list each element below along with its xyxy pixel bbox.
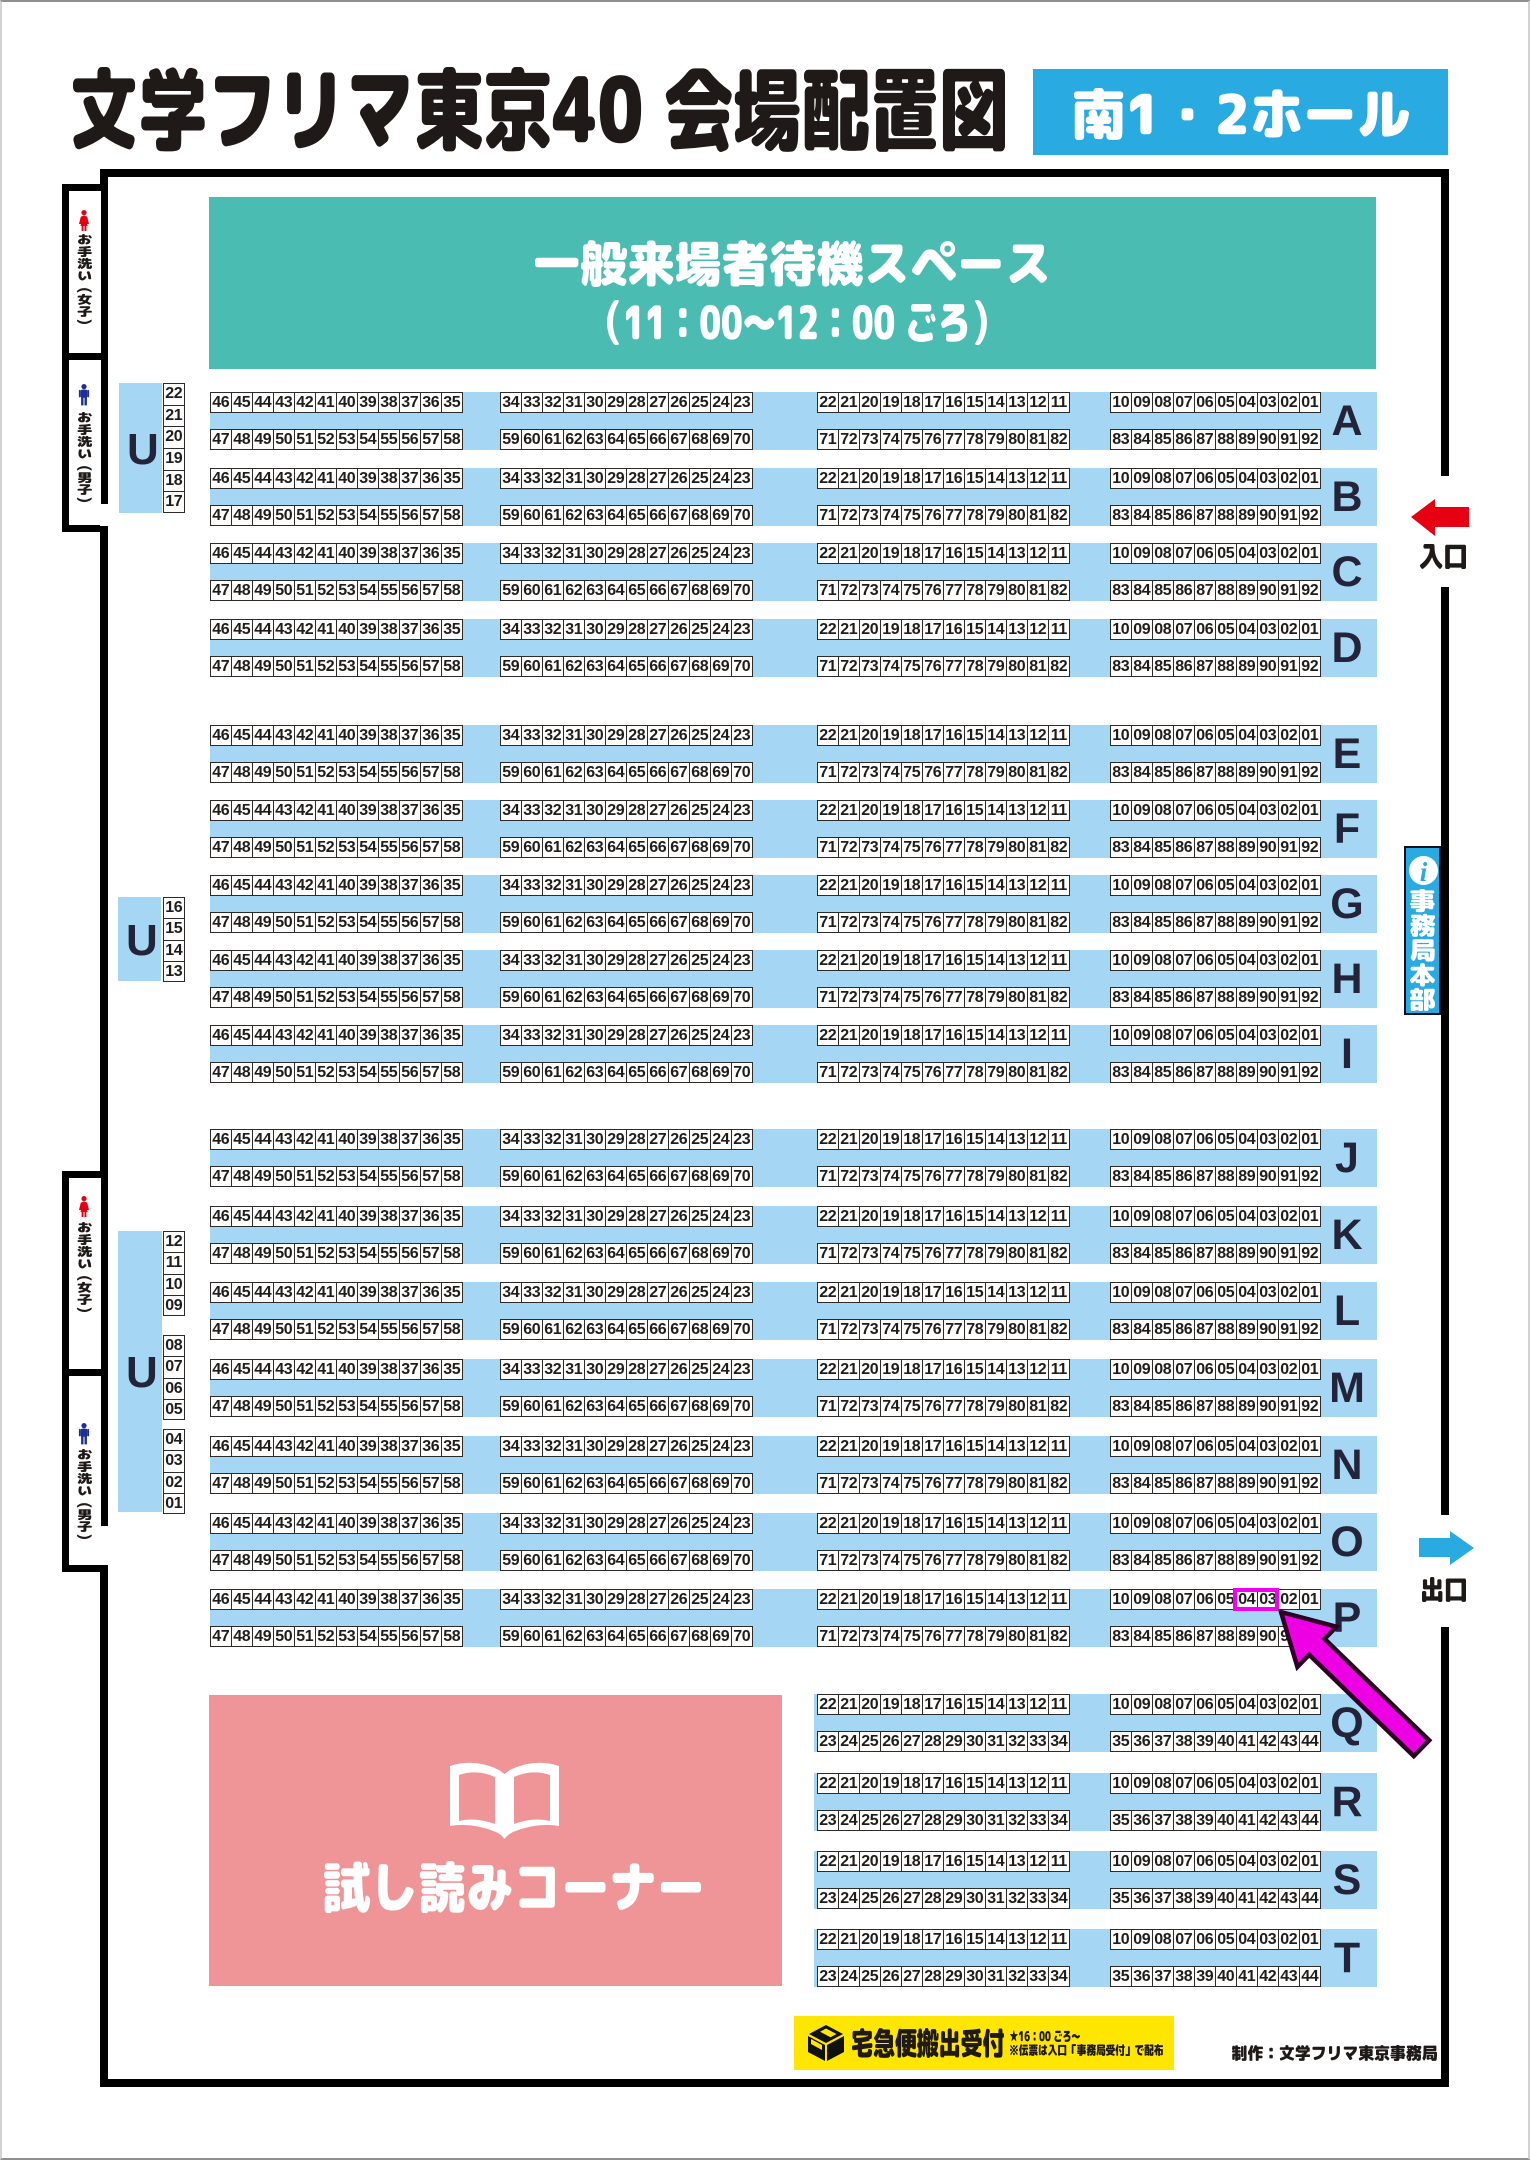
svg-text:i: i: [1420, 857, 1428, 885]
